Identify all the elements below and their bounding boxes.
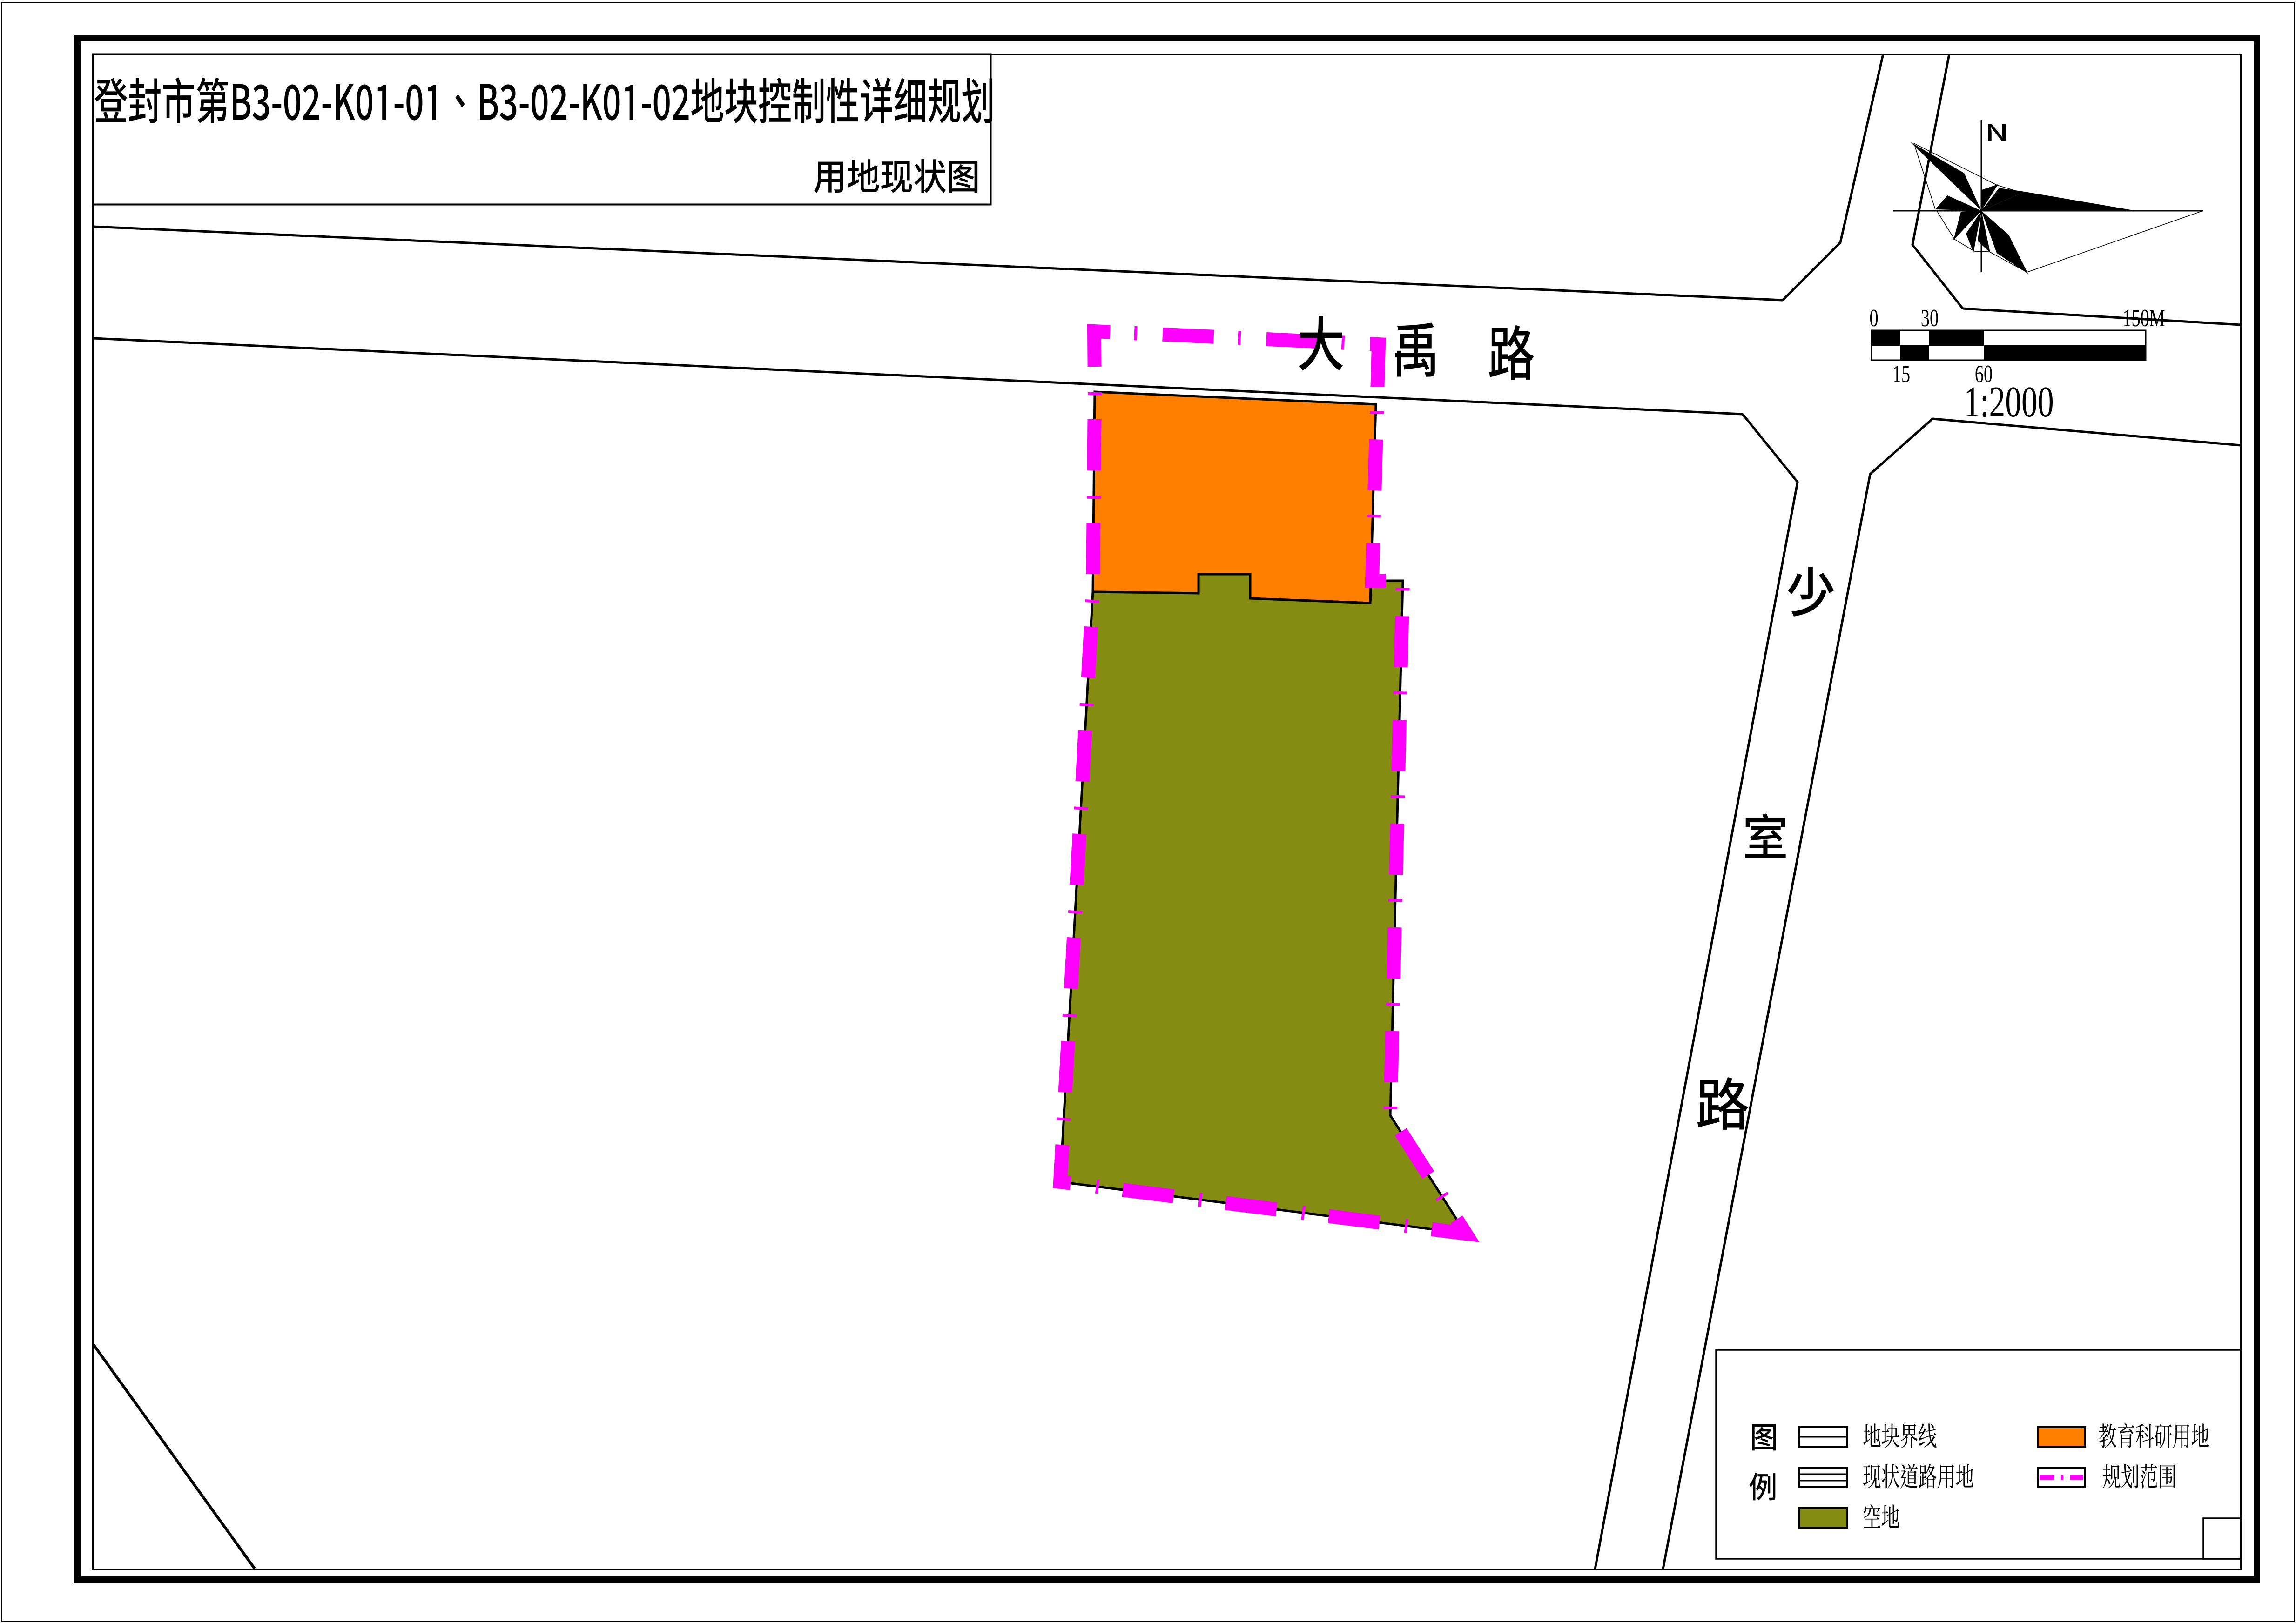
svg-text:30: 30 — [1921, 304, 1939, 332]
svg-text:15: 15 — [1892, 360, 1910, 388]
svg-text:0: 0 — [1869, 304, 1878, 332]
svg-text:1:2000: 1:2000 — [1964, 377, 2054, 426]
svg-text:150M: 150M — [2122, 304, 2165, 332]
